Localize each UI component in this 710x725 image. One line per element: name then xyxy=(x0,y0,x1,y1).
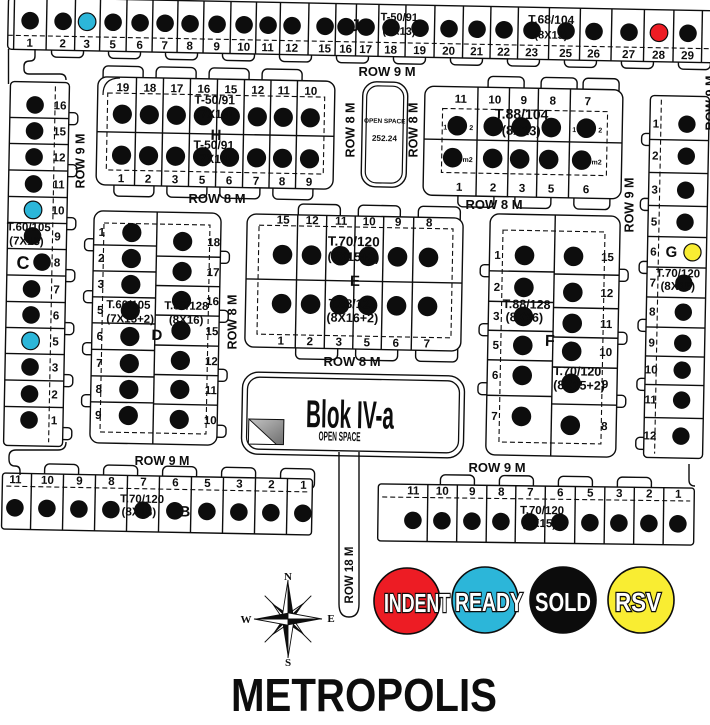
svg-text:3: 3 xyxy=(519,182,526,195)
svg-text:5: 5 xyxy=(548,182,555,195)
svg-text:1: 1 xyxy=(26,37,33,50)
svg-text:8: 8 xyxy=(108,475,115,488)
svg-text:11: 11 xyxy=(261,41,274,54)
svg-text:7: 7 xyxy=(253,175,260,188)
svg-text:7: 7 xyxy=(96,357,103,370)
svg-text:(8X13): (8X13) xyxy=(534,29,568,42)
svg-text:2: 2 xyxy=(646,487,653,500)
svg-text:7: 7 xyxy=(527,486,534,499)
svg-text:26: 26 xyxy=(587,47,601,60)
svg-text:1: 1 xyxy=(98,226,105,239)
svg-text:(8X15+2): (8X15+2) xyxy=(327,249,379,264)
svg-text:ROW 8 M: ROW 8 M xyxy=(406,103,420,158)
svg-text:ROW 8 M: ROW 8 M xyxy=(225,295,239,350)
svg-text:6: 6 xyxy=(226,174,233,187)
svg-text:11: 11 xyxy=(644,393,657,406)
svg-text:C: C xyxy=(16,253,29,273)
svg-text:1: 1 xyxy=(300,479,307,492)
svg-text:6: 6 xyxy=(392,337,399,350)
svg-text:12: 12 xyxy=(52,151,65,164)
svg-text:8: 8 xyxy=(186,40,193,53)
svg-text:17: 17 xyxy=(170,82,183,95)
svg-text:G: G xyxy=(665,244,677,261)
svg-text:ROW 9 M: ROW 9 M xyxy=(622,178,636,233)
svg-text:5: 5 xyxy=(52,335,59,348)
svg-text:5: 5 xyxy=(199,174,206,187)
svg-text:W: W xyxy=(241,614,252,626)
svg-text:11: 11 xyxy=(205,384,218,397)
svg-text:1: 1 xyxy=(494,249,501,262)
svg-text:(7X13): (7X13) xyxy=(195,152,231,167)
svg-text:9: 9 xyxy=(213,40,220,53)
svg-text:8: 8 xyxy=(95,383,102,396)
svg-text:INDENT: INDENT xyxy=(384,588,450,618)
svg-text:28: 28 xyxy=(652,49,666,62)
svg-text:11: 11 xyxy=(600,318,613,331)
svg-text:J: J xyxy=(350,16,360,35)
svg-text:1: 1 xyxy=(456,181,463,194)
svg-text:T.60/105: T.60/105 xyxy=(7,221,52,234)
svg-text:5: 5 xyxy=(204,477,211,490)
svg-text:3: 3 xyxy=(97,278,104,291)
svg-text:11: 11 xyxy=(455,93,468,106)
svg-text:15: 15 xyxy=(318,42,332,55)
svg-text:19: 19 xyxy=(413,44,427,57)
svg-text:7: 7 xyxy=(584,95,591,108)
svg-text:8: 8 xyxy=(601,420,608,433)
svg-text:OPEN SPACE: OPEN SPACE xyxy=(318,428,360,444)
svg-text:8: 8 xyxy=(279,175,286,188)
svg-text:(8X15+2): (8X15+2) xyxy=(553,378,605,393)
svg-text:9: 9 xyxy=(54,230,61,243)
svg-text:5: 5 xyxy=(109,38,116,51)
svg-text:19: 19 xyxy=(116,81,130,94)
svg-text:3: 3 xyxy=(616,487,623,500)
svg-text:10: 10 xyxy=(363,215,376,228)
svg-text:7: 7 xyxy=(161,39,168,52)
svg-text:11: 11 xyxy=(407,484,420,497)
svg-text:18: 18 xyxy=(207,236,221,249)
svg-text:9: 9 xyxy=(469,485,476,498)
svg-text:1: 1 xyxy=(278,335,285,348)
svg-text:F: F xyxy=(545,333,555,350)
svg-text:18: 18 xyxy=(384,43,398,56)
svg-text:3: 3 xyxy=(172,173,179,186)
svg-text:ROW 9 M: ROW 9 M xyxy=(358,64,415,79)
svg-text:6: 6 xyxy=(53,309,60,322)
svg-text:2: 2 xyxy=(494,281,501,294)
svg-text:T.70/120: T.70/120 xyxy=(520,505,564,518)
svg-text:9: 9 xyxy=(648,336,655,349)
svg-text:METROPOLIS: METROPOLIS xyxy=(231,669,497,720)
svg-text:12: 12 xyxy=(600,287,613,300)
svg-text:(7X13): (7X13) xyxy=(382,25,416,38)
svg-text:E: E xyxy=(350,273,360,290)
svg-text:7: 7 xyxy=(491,410,498,423)
svg-text:7: 7 xyxy=(423,337,430,350)
svg-text:15: 15 xyxy=(53,125,67,138)
svg-text:11: 11 xyxy=(278,84,291,97)
svg-text:11: 11 xyxy=(52,178,65,191)
svg-text:12: 12 xyxy=(643,429,656,442)
svg-text:E: E xyxy=(327,613,334,625)
svg-text:T.68/104: T.68/104 xyxy=(528,12,575,27)
svg-text:10: 10 xyxy=(599,346,612,359)
svg-text:T.88/128: T.88/128 xyxy=(328,297,376,312)
svg-text:T.70/120: T.70/120 xyxy=(656,268,700,281)
svg-text:ROW 9 M: ROW 9 M xyxy=(135,454,190,468)
svg-text:1: 1 xyxy=(572,127,576,134)
svg-text:T-50/91: T-50/91 xyxy=(193,138,234,153)
svg-text:8: 8 xyxy=(549,95,556,108)
svg-text:2: 2 xyxy=(598,127,602,134)
svg-text:m2: m2 xyxy=(591,159,601,166)
svg-text:N: N xyxy=(284,571,292,583)
svg-text:(8X16+2): (8X16+2) xyxy=(326,310,378,325)
svg-text:11: 11 xyxy=(335,215,348,228)
svg-text:(8X13): (8X13) xyxy=(502,123,541,139)
svg-text:9: 9 xyxy=(95,409,102,422)
svg-text:READY: READY xyxy=(455,587,523,617)
svg-text:2: 2 xyxy=(51,388,58,401)
svg-text:1: 1 xyxy=(443,124,447,131)
svg-text:ROW 8 M: ROW 8 M xyxy=(343,103,357,158)
svg-text:OPEN SPACE: OPEN SPACE xyxy=(364,118,406,126)
svg-text:16: 16 xyxy=(339,43,353,56)
svg-text:6: 6 xyxy=(136,39,143,52)
svg-text:SOLD: SOLD xyxy=(535,587,591,617)
svg-text:12: 12 xyxy=(285,42,298,55)
svg-text:10: 10 xyxy=(436,485,449,498)
svg-text:17: 17 xyxy=(359,43,372,56)
svg-text:12: 12 xyxy=(251,84,264,97)
svg-text:1: 1 xyxy=(51,414,58,427)
svg-text:10: 10 xyxy=(645,363,658,376)
svg-text:T-50/91: T-50/91 xyxy=(380,11,418,24)
svg-text:2: 2 xyxy=(306,335,313,348)
svg-text:20: 20 xyxy=(442,45,455,58)
svg-text:ROW 9 M: ROW 9 M xyxy=(468,460,525,475)
svg-text:10: 10 xyxy=(304,85,317,98)
svg-text:8: 8 xyxy=(54,256,61,269)
svg-text:252.24: 252.24 xyxy=(372,134,398,143)
svg-text:22: 22 xyxy=(497,46,510,59)
svg-text:(8X16): (8X16) xyxy=(169,314,204,327)
svg-text:3: 3 xyxy=(52,361,59,374)
svg-text:6: 6 xyxy=(583,183,590,196)
svg-text:T.60/105: T.60/105 xyxy=(106,299,151,312)
svg-text:T.70/120: T.70/120 xyxy=(553,364,601,379)
svg-text:2: 2 xyxy=(145,173,152,186)
svg-text:RSV: RSV xyxy=(615,587,662,617)
svg-text:m2: m2 xyxy=(463,157,473,164)
svg-text:S: S xyxy=(285,657,291,669)
svg-text:1: 1 xyxy=(653,118,660,131)
svg-text:1: 1 xyxy=(118,172,125,185)
svg-text:25: 25 xyxy=(559,47,573,60)
svg-text:21: 21 xyxy=(470,45,484,58)
svg-text:(8X16): (8X16) xyxy=(505,310,543,325)
svg-text:27: 27 xyxy=(622,48,635,61)
svg-text:3: 3 xyxy=(236,478,243,491)
svg-text:3: 3 xyxy=(83,38,90,51)
svg-text:T.70/120: T.70/120 xyxy=(328,233,380,249)
svg-text:(8X15): (8X15) xyxy=(660,281,695,294)
svg-text:D: D xyxy=(151,327,162,344)
svg-text:15: 15 xyxy=(277,214,291,227)
svg-text:6: 6 xyxy=(650,246,657,259)
svg-text:(7X15): (7X15) xyxy=(9,235,44,248)
svg-text:2: 2 xyxy=(268,478,275,491)
svg-text:12: 12 xyxy=(205,355,218,368)
svg-text:5: 5 xyxy=(492,339,499,352)
svg-text:9: 9 xyxy=(76,474,83,487)
svg-text:7: 7 xyxy=(53,283,60,296)
svg-text:T.88/104: T.88/104 xyxy=(495,105,549,122)
svg-text:9: 9 xyxy=(395,216,402,229)
svg-text:2: 2 xyxy=(469,125,473,132)
svg-text:6: 6 xyxy=(96,330,103,343)
svg-text:(8X15): (8X15) xyxy=(121,506,156,519)
svg-text:16: 16 xyxy=(53,99,67,112)
svg-text:11: 11 xyxy=(9,473,22,486)
svg-text:1: 1 xyxy=(675,488,682,501)
svg-text:2: 2 xyxy=(59,37,66,50)
svg-text:ROW 8 M: ROW 8 M xyxy=(465,197,522,212)
svg-text:(7X13): (7X13) xyxy=(196,107,232,122)
svg-text:3: 3 xyxy=(493,310,500,323)
svg-text:ROW 8 M: ROW 8 M xyxy=(323,354,380,369)
svg-text:8: 8 xyxy=(498,485,505,498)
svg-text:23: 23 xyxy=(525,46,539,59)
svg-text:8: 8 xyxy=(649,305,656,318)
svg-text:8: 8 xyxy=(426,216,433,229)
svg-text:5: 5 xyxy=(97,304,104,317)
svg-text:(8X15): (8X15) xyxy=(522,518,557,530)
svg-text:18: 18 xyxy=(143,82,157,95)
svg-text:10: 10 xyxy=(51,204,64,217)
svg-text:3: 3 xyxy=(651,184,658,197)
svg-text:ROW 8 M: ROW 8 M xyxy=(188,191,245,206)
svg-text:3: 3 xyxy=(335,336,342,349)
svg-text:(7X15+2): (7X15+2) xyxy=(106,313,154,326)
svg-text:15: 15 xyxy=(601,251,615,264)
svg-text:10: 10 xyxy=(204,414,217,427)
svg-text:ROW 18 M: ROW 18 M xyxy=(344,547,356,604)
svg-text:10: 10 xyxy=(41,474,54,487)
svg-text:T-50/91: T-50/91 xyxy=(194,93,235,108)
svg-text:B: B xyxy=(179,503,190,520)
svg-text:29: 29 xyxy=(681,49,695,62)
svg-text:7: 7 xyxy=(140,476,147,489)
svg-text:2: 2 xyxy=(98,252,105,265)
svg-text:6: 6 xyxy=(172,476,179,489)
svg-text:ROW 9 M: ROW 9 M xyxy=(703,76,710,131)
svg-text:10: 10 xyxy=(237,41,250,54)
svg-text:5: 5 xyxy=(651,216,658,229)
svg-text:5: 5 xyxy=(363,336,370,349)
svg-text:6: 6 xyxy=(557,486,564,499)
svg-text:12: 12 xyxy=(306,214,319,227)
svg-text:T.85/128: T.85/128 xyxy=(164,300,209,313)
svg-text:5: 5 xyxy=(587,487,594,500)
svg-text:15: 15 xyxy=(205,325,219,338)
svg-text:2: 2 xyxy=(652,150,659,163)
svg-text:6: 6 xyxy=(492,369,499,382)
svg-text:ROW 9 M: ROW 9 M xyxy=(73,134,87,189)
svg-text:T.70/120: T.70/120 xyxy=(120,493,164,506)
svg-text:9: 9 xyxy=(306,176,313,189)
svg-text:2: 2 xyxy=(490,181,497,194)
svg-text:17: 17 xyxy=(206,266,219,279)
